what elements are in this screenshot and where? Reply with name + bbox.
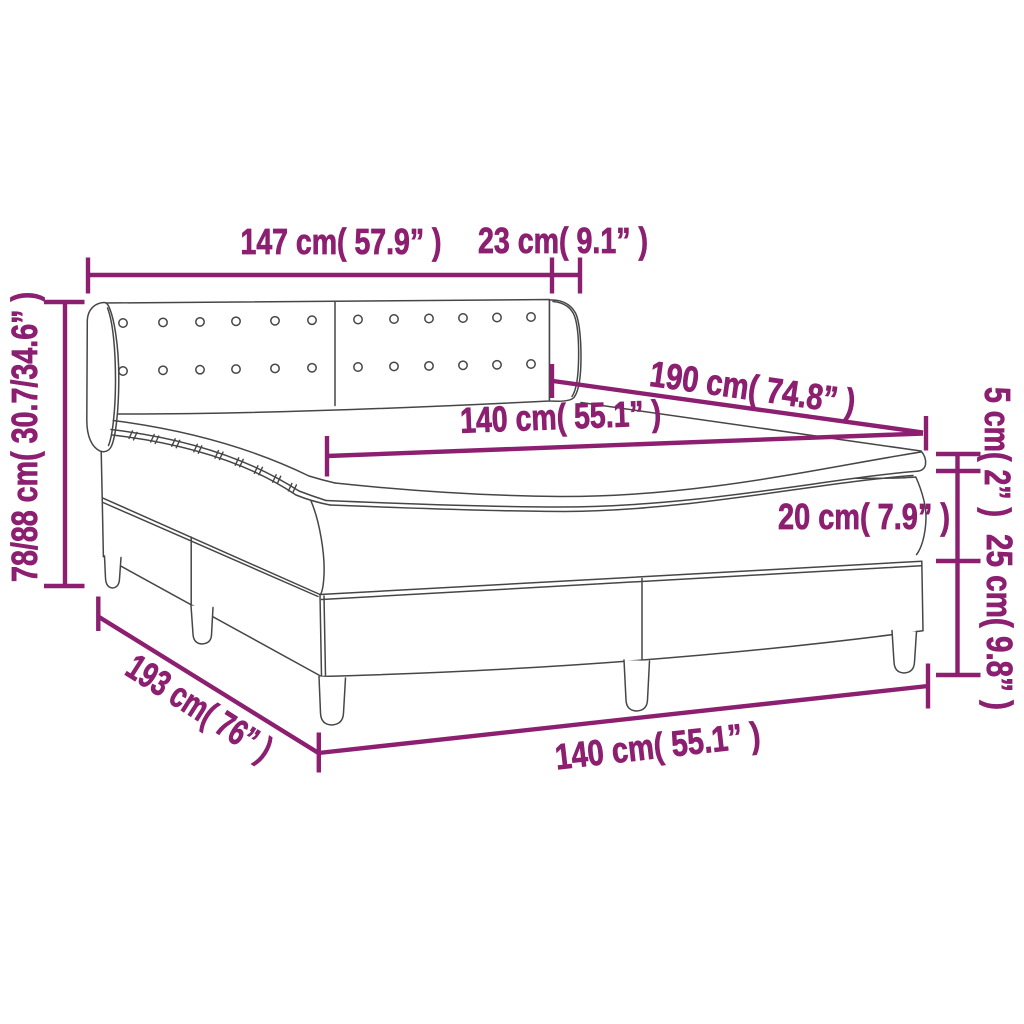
svg-text:190 cm( 74.8” ): 190 cm( 74.8” ) bbox=[647, 353, 858, 422]
svg-text:23 cm( 9.1” ): 23 cm( 9.1” ) bbox=[478, 220, 648, 261]
svg-text:5 cm( 2” ): 5 cm( 2” ) bbox=[977, 387, 1018, 517]
svg-text:140 cm( 55.1” ): 140 cm( 55.1” ) bbox=[459, 392, 661, 441]
svg-text:193 cm( 76” ): 193 cm( 76” ) bbox=[119, 646, 280, 769]
svg-text:78/88 cm( 30.7/34.6” ): 78/88 cm( 30.7/34.6” ) bbox=[4, 292, 45, 582]
svg-text:20 cm( 7.9” ): 20 cm( 7.9” ) bbox=[778, 496, 950, 537]
svg-text:147 cm( 57.9” ): 147 cm( 57.9” ) bbox=[241, 221, 442, 262]
svg-text:25 cm( 9.8” ): 25 cm( 9.8” ) bbox=[979, 534, 1020, 710]
